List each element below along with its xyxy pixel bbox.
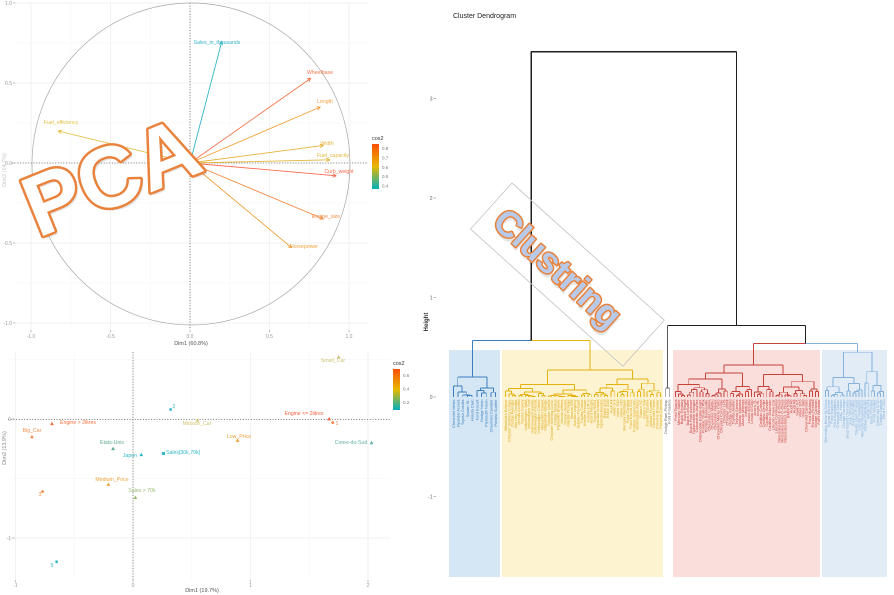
pca-variable-label: Width [320,141,333,147]
pca-legend-tick-labels: 0.80.70.60.50.4 [382,146,389,189]
dendrogram-axis-ticks: 3210-1 [428,97,436,501]
pca-legend-title: cos2 [372,136,384,142]
legend-tick-label: 0.5 [382,174,389,179]
mca-point-label: Coree-du-Sud [335,440,368,446]
mca-point-label: Etats-Unis [100,440,124,446]
pca-variable-label: Sales_in_thousands [194,40,241,46]
figure-collage: Sales_in_thousandsWheelbaseLengthWidthFu… [0,0,894,595]
mca-point-triangle [30,435,34,438]
mca-point-label: Big_Car [23,428,42,434]
pca-watermark: PCA PCA [9,99,216,259]
mca-point-label: Sales[30k,70k] [166,450,201,456]
mca-point-square [162,452,165,455]
x-tick-label: 0.0 [187,334,194,340]
dendrogram-y-axis-label: Height [424,313,430,332]
mca-point-triangle [370,441,374,444]
mca-axis-ticks: -10120-1 [7,417,370,589]
pca-variable-label: Fuel_capacity [317,153,349,159]
dendrogram-watermark: Clustring Clustring [471,183,665,366]
x-tick-label: -1.0 [27,334,36,340]
mca-point-label: Small_Car [321,358,345,364]
pca-variable-label: Curb_weight [324,169,354,175]
pca-cos2-legend: cos2 0.80.70.60.50.4 [372,136,389,189]
mca-gridlines [8,352,390,595]
y-tick-label: 0 [8,417,11,423]
legend-tick-label: 0.7 [382,155,389,160]
mca-y-axis-label: Dim2 (13.9%) [2,431,8,465]
mca-point-label: Low_Price [227,434,251,440]
pca-variable-label: Wheelbase [307,70,333,76]
pca-variable-label: Length [317,99,333,105]
y-tick-label: 1.0 [5,1,12,7]
mca-points: Small_Car2Engine <= 2litres1Coree-du-Sud… [23,355,374,569]
mca-point-triangle [50,422,54,425]
pca-legend-gradient-bar [372,144,379,189]
dendrogram-title: Cluster Dendrogram [453,13,516,20]
dendrogram-leaf-label: Porsche Carrera [658,399,663,429]
pca-arrowhead [58,130,62,131]
mca-point-circle [331,421,334,424]
mca-point-label: Engine <= 2litres [285,411,324,417]
mca-point-label: 1 [336,421,339,427]
mca-point-triangle [111,447,115,450]
dendrogram-leaf-label: Ford F-Series [667,400,672,424]
x-tick-label: 2 [367,583,370,589]
x-tick-label: 1.0 [346,334,353,340]
mca-cos2-legend: cos2 0.60.40.2 [393,361,410,410]
y-tick-label: -0.5 [3,241,12,247]
height-tick-label: 0 [430,395,433,401]
mca-point-label: Sales > 70k [128,488,156,494]
dendrogram-leaf-label: Ford Windstar [816,399,821,425]
cluster-rect [449,350,500,577]
height-tick-label: 1 [430,296,433,302]
dendrogram-leaf-label: Ford F-150 [881,399,886,420]
legend-tick-label: 0.4 [382,184,389,189]
height-tick-label: 3 [430,97,433,103]
legend-tick-label: 0.8 [382,146,389,151]
mca-point-label: Midsize_Car [183,421,212,427]
mca-point-label: 2 [173,404,176,410]
pca-panel: Sales_in_thousandsWheelbaseLengthWidthFu… [0,0,447,350]
y-tick-label: -1.0 [3,321,12,327]
legend-tick-label: 0.4 [403,387,410,392]
x-tick-label: -0.5 [106,334,115,340]
mca-point-label: 3 [39,492,42,498]
pca-variable-label: Horsepower [290,244,318,250]
mca-panel: Small_Car2Engine <= 2litres1Coree-du-Sud… [0,350,447,595]
x-tick-label: -1 [13,583,18,589]
y-tick-label: -1 [7,536,12,542]
mca-x-axis-label: Dim1 (19.7%) [185,588,219,594]
mca-point-triangle [139,453,143,456]
mca-legend-gradient-bar [393,369,400,410]
x-tick-label: 0 [132,583,135,589]
x-tick-label: 1 [249,583,252,589]
pca-arrow [190,78,311,163]
dendrogram-watermark-text: Clustring [485,200,630,336]
legend-tick-label: 0.2 [403,400,410,405]
mca-point-label: Medium_Price [95,477,128,483]
dendrogram-leaf-label: Pontiac Sunfire [493,399,498,427]
legend-tick-label: 0.6 [403,373,410,378]
mca-point-circle [41,490,44,493]
mca-legend-tick-labels: 0.60.40.2 [403,373,410,405]
legend-tick-label: 0.6 [382,165,389,170]
pca-variable-label: Engine_size [312,214,340,220]
pca-x-axis-label: Dim1 (60.8%) [174,341,208,347]
height-tick-label: 2 [430,196,433,202]
mca-point-label: Engine > 2litres [60,420,96,426]
pca-variable-label: Fuel_efficiency [44,120,79,126]
mca-point-label: 5 [51,563,54,569]
pca-arrow [190,163,336,176]
height-tick-label: -1 [428,495,433,501]
pca-y-axis-label: Dim2 (14.7%) [2,153,8,187]
pca-arrowhead [307,78,311,79]
y-tick-label: 0.5 [5,81,12,87]
x-tick-label: 0.5 [266,334,273,340]
mca-point-triangle [133,496,137,499]
mca-point-label: Japon [123,453,137,459]
mca-point-circle [55,560,58,563]
mca-legend-title: cos2 [393,361,405,367]
dendrogram-panel: Cluster Dendrogram Chevrolet MetroHyunda… [420,0,894,595]
